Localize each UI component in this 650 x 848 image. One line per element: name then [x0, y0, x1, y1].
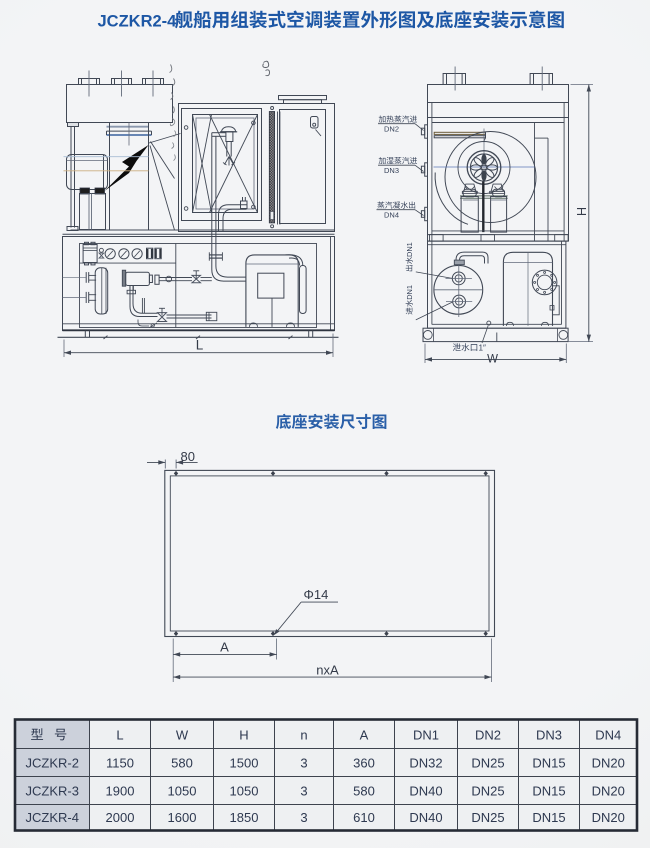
svg-text:A: A: [360, 727, 369, 742]
svg-text:DN1: DN1: [405, 285, 414, 300]
svg-text:JCZKR2-4: JCZKR2-4: [98, 13, 178, 31]
svg-text:80: 80: [181, 449, 195, 464]
svg-text:DN32: DN32: [409, 755, 442, 770]
svg-text:DN20: DN20: [592, 755, 625, 770]
svg-text:1050: 1050: [168, 783, 197, 798]
svg-text:3: 3: [300, 755, 307, 770]
svg-text:DN15: DN15: [532, 783, 565, 798]
svg-text:1850: 1850: [230, 810, 259, 825]
svg-text:DN2: DN2: [384, 124, 399, 133]
svg-text:Φ14: Φ14: [304, 587, 329, 602]
svg-text:DN25: DN25: [471, 810, 504, 825]
svg-text:n: n: [300, 727, 307, 742]
svg-text:DN40: DN40: [409, 810, 442, 825]
svg-text:DN15: DN15: [532, 755, 565, 770]
svg-text:JCZKR-3: JCZKR-3: [26, 783, 79, 798]
svg-text:DN3: DN3: [536, 727, 562, 742]
svg-text:DN20: DN20: [592, 810, 625, 825]
svg-text:DN1: DN1: [413, 727, 439, 742]
svg-text:JCZKR-2: JCZKR-2: [26, 755, 79, 770]
svg-text:2000: 2000: [106, 810, 135, 825]
svg-text:nxA: nxA: [316, 663, 339, 678]
svg-text:DN40: DN40: [409, 783, 442, 798]
svg-text:DN25: DN25: [471, 783, 504, 798]
svg-text:DN25: DN25: [471, 755, 504, 770]
svg-text:610: 610: [353, 810, 375, 825]
svg-text:DN2: DN2: [475, 727, 501, 742]
svg-text:DN20: DN20: [592, 783, 625, 798]
svg-text:DN4: DN4: [384, 210, 399, 219]
svg-text:DN4: DN4: [595, 727, 621, 742]
svg-text:360: 360: [353, 755, 375, 770]
svg-text:L: L: [196, 338, 204, 353]
svg-text:W: W: [487, 353, 498, 365]
svg-text:1″: 1″: [479, 344, 487, 353]
svg-text:580: 580: [171, 755, 193, 770]
svg-text:1500: 1500: [230, 755, 259, 770]
svg-text:1150: 1150: [106, 755, 134, 770]
svg-text:JCZKR-4: JCZKR-4: [26, 810, 79, 825]
svg-text:3: 3: [300, 810, 307, 825]
svg-text:DN15: DN15: [532, 810, 565, 825]
svg-text:L: L: [116, 727, 123, 742]
svg-text:1600: 1600: [168, 810, 197, 825]
svg-text:DN3: DN3: [384, 166, 399, 175]
svg-text:3: 3: [300, 783, 307, 798]
svg-text:A: A: [220, 639, 229, 654]
svg-text:1050: 1050: [230, 783, 259, 798]
svg-text:580: 580: [353, 783, 375, 798]
svg-text:DN1: DN1: [405, 242, 414, 257]
svg-text:W: W: [176, 727, 189, 742]
svg-text:H: H: [575, 207, 589, 216]
svg-text:1900: 1900: [106, 783, 135, 798]
svg-text:H: H: [239, 727, 248, 742]
